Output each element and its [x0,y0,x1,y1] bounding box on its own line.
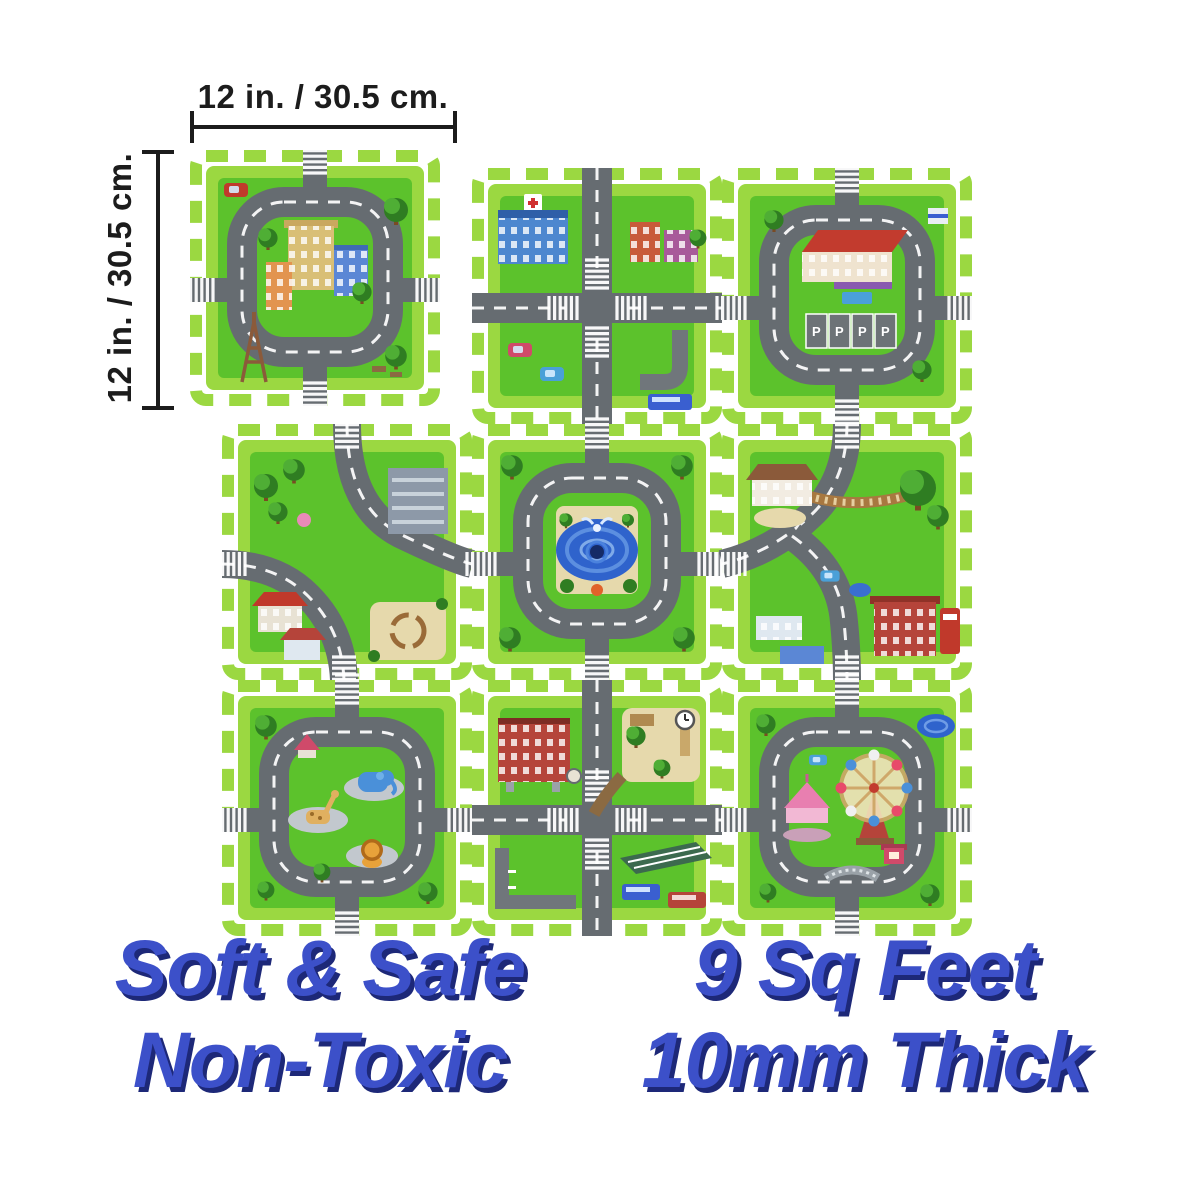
police-box [928,208,948,224]
toy-truck [224,183,248,197]
tile-zoo-animals [217,675,477,941]
claim-soft-safe: Soft & Safe [40,922,600,1014]
height-dimension-label: 12 in. / 30.5 cm. [101,128,139,428]
red-brick-building [498,718,581,792]
lion-icon [361,839,383,868]
tile-hospital-crossroads [472,168,722,424]
ticket-booth [881,844,907,864]
parking-garage-building [388,468,448,534]
product-image: P P P P [0,0,1200,1200]
tile-fountain-roundabout [467,419,727,685]
claims-right: 9 Sq Feet 10mm Thick [570,922,1160,1105]
svg-text:P: P [881,324,890,339]
pond [917,714,955,738]
tile-school-parking: P P P P [717,163,977,429]
tile-funfair [717,675,977,941]
svg-text:P: P [858,324,867,339]
tile-clock-park [472,680,722,936]
svg-text:P: P [812,324,821,339]
fountain [556,506,638,596]
svg-text:P: P [835,324,844,339]
claim-area: 9 Sq Feet [570,922,1160,1014]
claim-non-toxic: Non-Toxic [40,1014,600,1106]
tile-villa-bridge [717,419,966,685]
detached-tile-city-block [185,145,445,411]
width-dimension-label: 12 in. / 30.5 cm. [163,78,483,116]
claims-left: Soft & Safe Non-Toxic [40,922,600,1105]
height-dimension-line [142,152,174,408]
claim-thickness: 10mm Thick [570,1014,1160,1106]
sand-playground [368,598,448,662]
tile-park-curves [217,419,472,685]
